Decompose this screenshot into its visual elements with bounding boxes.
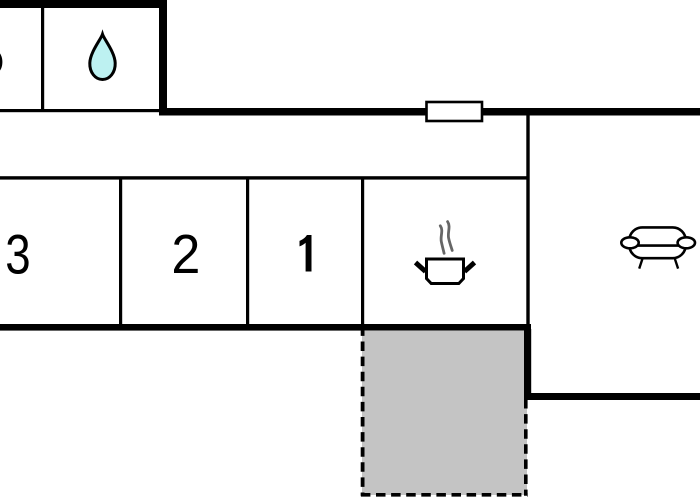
svg-text:2: 2 [171, 225, 200, 286]
svg-text:3: 3 [5, 223, 30, 285]
